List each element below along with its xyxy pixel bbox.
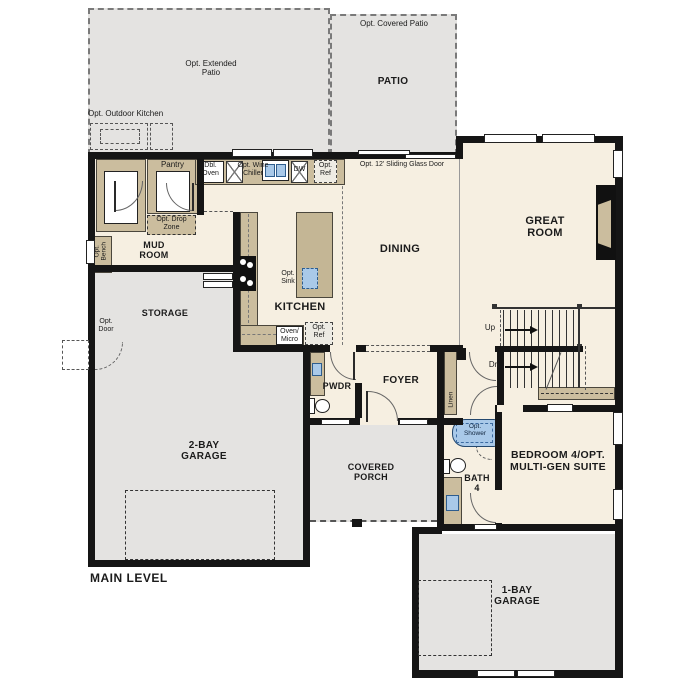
bedroom-window (613, 412, 623, 445)
burner-icon (247, 262, 253, 268)
bedroom4-label: BEDROOM 4/OPT. MULTI-GEN SUITE (498, 450, 618, 474)
kitchen-window (273, 149, 313, 157)
main-level-label: MAIN LEVEL (90, 572, 168, 585)
oven-micro-label: Oven/ Micro (277, 328, 302, 344)
wall-mud-storage (88, 265, 240, 272)
stair-post (492, 304, 497, 309)
front-door-leaf (366, 391, 368, 422)
greatroom-window (542, 134, 595, 143)
foyer-window (321, 419, 350, 425)
garage1-label: 1-BAY GARAGE (487, 585, 547, 607)
garage1-door-panel (517, 670, 555, 677)
wall-stair-west (497, 346, 504, 406)
opt-door-dashed-rect (62, 340, 89, 370)
great-room-floor-top (460, 143, 616, 163)
dw-label: DW (291, 166, 308, 174)
mud-room-label: MUD ROOM (131, 240, 177, 260)
ref-top-label: Opt. Ref (317, 162, 334, 178)
understair-closet (538, 387, 615, 400)
hall-window (547, 404, 573, 412)
outdoor-kitchen-label: Opt. Outdoor Kitchen (88, 110, 208, 119)
storage-label: STORAGE (125, 308, 205, 318)
garage1-door-panel (477, 670, 515, 677)
porch-center-post (352, 519, 362, 527)
stair-right-rail (578, 309, 580, 388)
covered-patio-label: Opt. Covered Patio (338, 20, 450, 29)
foyer-window (399, 419, 428, 425)
garage2-door-dashed (125, 490, 275, 560)
kitchen-sink-basin-right (276, 164, 286, 177)
pwdr-label: PWDR (319, 381, 355, 391)
garage1-door-dashed (418, 580, 492, 656)
mudroom-kitchen-opening (204, 211, 233, 212)
kitchen-dining-divider (342, 161, 343, 345)
pantry-label: Pantry (147, 161, 198, 170)
sliding-door-label: Opt. 12' Sliding Glass Door (348, 161, 456, 169)
fireplace-insert (598, 200, 611, 248)
opt-shower-label: Opt. Shower (461, 423, 489, 438)
wall-bedroom-bottom (437, 524, 623, 531)
wall-top-greatroom (456, 136, 622, 143)
opt-sink-label: Opt. Sink (278, 270, 298, 286)
landing-dash (585, 346, 586, 390)
garage2-label: 2-BAY GARAGE (174, 440, 234, 462)
covered-porch-label: COVERED PORCH (343, 462, 399, 482)
sliding-glass-door-panel (405, 154, 456, 159)
wine-chiller-label: Opt. Wine Chiller (236, 162, 270, 178)
wall-bath-left (437, 345, 444, 531)
foyer-label: FOYER (371, 375, 431, 386)
outdoor-kitchen-box2 (150, 123, 173, 150)
kitchen-label: KITCHEN (265, 301, 335, 313)
storage-step (203, 281, 233, 288)
stairs-up-run (503, 310, 579, 346)
great-room-label: GREAT ROOM (517, 215, 573, 240)
extended-patio-label: Opt. Extended Patio (180, 60, 242, 78)
up-arrow-head-icon (530, 326, 538, 334)
sliding-glass-door-panel (358, 150, 410, 155)
wall-garage1-right (615, 531, 623, 678)
linen-label: Linen (447, 387, 454, 413)
burner-icon (240, 259, 246, 265)
closet-door-leaf (114, 181, 116, 212)
up-arrow (505, 329, 531, 331)
bath4-toilet-tank (443, 459, 450, 474)
pantry-door-leaf (192, 183, 194, 211)
opt-door-label: Opt. Door (95, 318, 117, 334)
stairs-dn-run (503, 352, 579, 388)
stair-left-dash (500, 310, 501, 346)
pwdr-door-leaf (353, 352, 355, 380)
pwdr-toilet-bowl (315, 399, 330, 413)
wall-left (88, 152, 95, 567)
bath4-label: BATH 4 (461, 473, 493, 493)
bedroom-window (613, 489, 623, 520)
dbl-oven-label: Dbl. Oven (198, 162, 223, 178)
pwdr-door-opening (330, 345, 356, 352)
bench-label: Opt. Bench (94, 238, 109, 264)
greatroom-window (484, 134, 537, 143)
storage-step (203, 273, 233, 280)
dining-label: DINING (370, 243, 430, 255)
foyer-cased-opening (366, 345, 430, 352)
hall-hinge-post (457, 348, 466, 360)
dn-arrow (505, 366, 531, 368)
bedroom-bottom-door (474, 524, 497, 530)
ref-kitchen-label: Opt. Ref (310, 324, 328, 340)
burner-icon (247, 280, 253, 286)
floor-plan: Opt. Extended Patio Opt. Covered Patio P… (0, 0, 687, 687)
bedroom-hall-opening (497, 405, 523, 412)
kitchen-window (232, 149, 272, 157)
dn-arrow-head-icon (530, 363, 538, 371)
pwdr-sink (312, 363, 322, 376)
island-opt-sink (302, 268, 318, 289)
outdoor-kitchen-box-inner (100, 129, 140, 144)
dn-label: Dn (485, 361, 503, 370)
patio-label: PATIO (363, 76, 423, 87)
wall-porch-left (303, 352, 310, 567)
greatroom-side-window (613, 150, 623, 178)
dining-greatroom-divider (459, 159, 460, 346)
bath4-toilet-bowl (450, 458, 466, 473)
up-label: Up (481, 324, 499, 333)
stair-top-rail (495, 307, 617, 309)
wall-connector (456, 136, 463, 159)
wall-kitchen-left (233, 212, 240, 352)
wall-garage2-bottom (88, 560, 310, 567)
bath4-sink (446, 495, 459, 511)
burner-icon (240, 276, 246, 282)
drop-zone-label: Opt. Drop Zone (153, 216, 190, 232)
